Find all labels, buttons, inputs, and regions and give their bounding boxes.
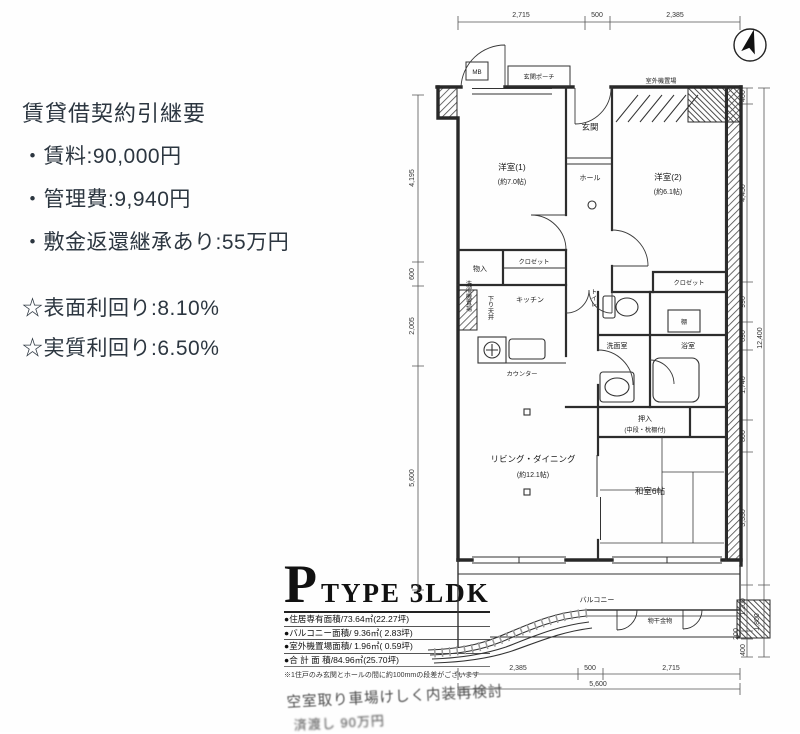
room-labels: MB 玄関ポーチ 室外機置場 玄関 ホール 洋室(1) (約7.0帖) 洋室(2…: [465, 69, 705, 625]
ld-fitting-2: [524, 489, 530, 495]
dim-bottom-2: 500: [584, 665, 596, 672]
living-label: リビング・ダイニング: [490, 454, 576, 464]
japanese-room-label: 和室6帖: [635, 486, 666, 496]
counter-label: カウンター: [507, 370, 538, 378]
balcony-corner-hatch: [737, 600, 770, 638]
storage1-label: 物入: [473, 264, 487, 273]
dim-bottom-3: 2,715: [662, 665, 680, 672]
kitchen-label: キッチン: [516, 296, 544, 304]
party-wall-hatch: [728, 88, 741, 560]
dim-bottom-1: 2,385: [509, 665, 527, 672]
laundry-bracket-label: 物干金物: [648, 617, 673, 625]
balcony-label: バルコニー: [580, 596, 615, 604]
dim-left-3: 2,005: [409, 317, 416, 335]
yield-summary: ☆表面利回り:8.10% ☆実質利回り:6.50%: [22, 292, 352, 362]
lowered-ceiling-label: 下り天井: [487, 296, 494, 322]
outdoor-unit-label: 室外機置場: [646, 77, 677, 85]
porch-pillar-hatch: [437, 87, 457, 118]
gross-yield: ☆表面利回り:8.10%: [22, 292, 352, 322]
scanned-document-page: 賃貸借契約引継要 ・賃料:90,000円 ・管理費:9,940円 ・敷金返還継承…: [0, 0, 800, 732]
oshiire-label: 押入: [638, 414, 652, 423]
type-letter: P: [284, 560, 317, 609]
contract-summary: 賃貸借契約引継要 ・賃料:90,000円 ・管理費:9,940円 ・敷金返還継承…: [22, 96, 352, 372]
mb-label: MB: [472, 69, 481, 76]
western2-door: [612, 230, 648, 266]
balcony-partition-2: [683, 610, 702, 629]
contract-title: 賃貸借契約引継要: [22, 96, 352, 128]
porch-label: 玄関ポーチ: [524, 73, 555, 81]
kitchen-sink: [509, 339, 545, 359]
dim-balcony-3: 400: [740, 644, 747, 656]
floor-plan: 2,715 500 2,385 4,195 600 2,005 5,600 40…: [400, 0, 800, 732]
balcony-structure: [428, 560, 740, 663]
shelf-label: 棚: [681, 318, 687, 326]
fixtures: [478, 201, 700, 495]
toilet-label: トイレ: [590, 289, 597, 308]
contract-rent: ・賃料:90,000円: [22, 140, 352, 170]
western1-size-label: (約7.0帖): [498, 177, 526, 186]
dim-top-1: 2,715: [512, 12, 530, 19]
western2-label: 洋室(2): [654, 172, 682, 182]
toilet-tank: [603, 296, 615, 318]
front-door: [575, 88, 611, 124]
contract-deposit: ・敷金返還継承あり:55万円: [22, 226, 352, 256]
dim-left-4: 5,600: [409, 469, 416, 487]
compass-north-icon: [734, 28, 766, 61]
dim-top-3: 2,385: [666, 12, 684, 19]
porch-gate-door: [461, 45, 505, 87]
washroom-door: [598, 350, 633, 385]
western1-label: 洋室(1): [498, 162, 526, 172]
hall-label: ホール: [580, 174, 601, 182]
dim-left-2: 600: [409, 268, 416, 280]
living-size-label: (約12.1帖): [517, 470, 549, 479]
toilet-bowl: [616, 298, 638, 316]
bathroom-label: 浴室: [681, 341, 695, 350]
outer-walls: [437, 87, 741, 565]
ld-fitting-1: [524, 409, 530, 415]
western2-size-label: (約6.1帖): [654, 187, 682, 196]
bathtub: [653, 358, 699, 402]
hall-fitting: [588, 201, 596, 209]
washer-label: 洗濯機置場: [465, 280, 472, 313]
western1-door: [531, 215, 566, 250]
thin-lines: [466, 62, 722, 563]
dim-right-total: 12,400: [757, 327, 764, 349]
entrance-label: 玄関: [581, 122, 598, 132]
dim-left-1: 4,195: [409, 169, 416, 187]
oshiire-sub-label: (中段・枕棚付): [624, 426, 665, 434]
net-yield: ☆実質利回り:6.50%: [22, 332, 352, 362]
dim-bottom-total: 5,600: [589, 681, 607, 688]
contract-management-fee: ・管理費:9,940円: [22, 183, 352, 213]
wash-basin: [605, 378, 629, 396]
closet2-label: クロゼット: [674, 279, 705, 287]
dim-top-2: 500: [591, 12, 603, 19]
washroom-label: 洗面室: [607, 341, 628, 350]
balcony-partition-1: [617, 610, 637, 630]
closet1-label: クロゼット: [519, 258, 550, 266]
